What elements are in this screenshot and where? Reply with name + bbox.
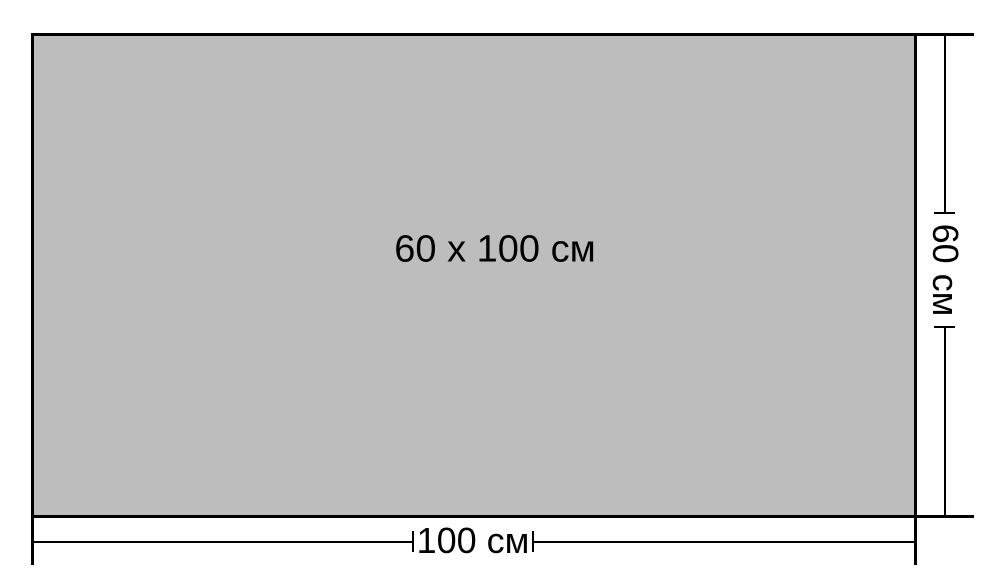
panel-size-label: 60 x 100 см	[394, 229, 595, 272]
panel-rect	[31, 33, 917, 518]
height-dim-line-upper	[944, 35, 946, 213]
dimension-diagram: 60 x 100 см 60 см 100 см	[0, 0, 1000, 582]
height-dim-label: 60 см	[924, 224, 966, 317]
width-dim-line-right	[533, 541, 916, 543]
width-dim-line-left	[32, 541, 413, 543]
width-dim-tick-left	[412, 531, 414, 552]
height-dim-tick-top	[934, 212, 955, 214]
height-dim-line-lower	[944, 327, 946, 517]
width-dim-label: 100 см	[417, 520, 530, 562]
